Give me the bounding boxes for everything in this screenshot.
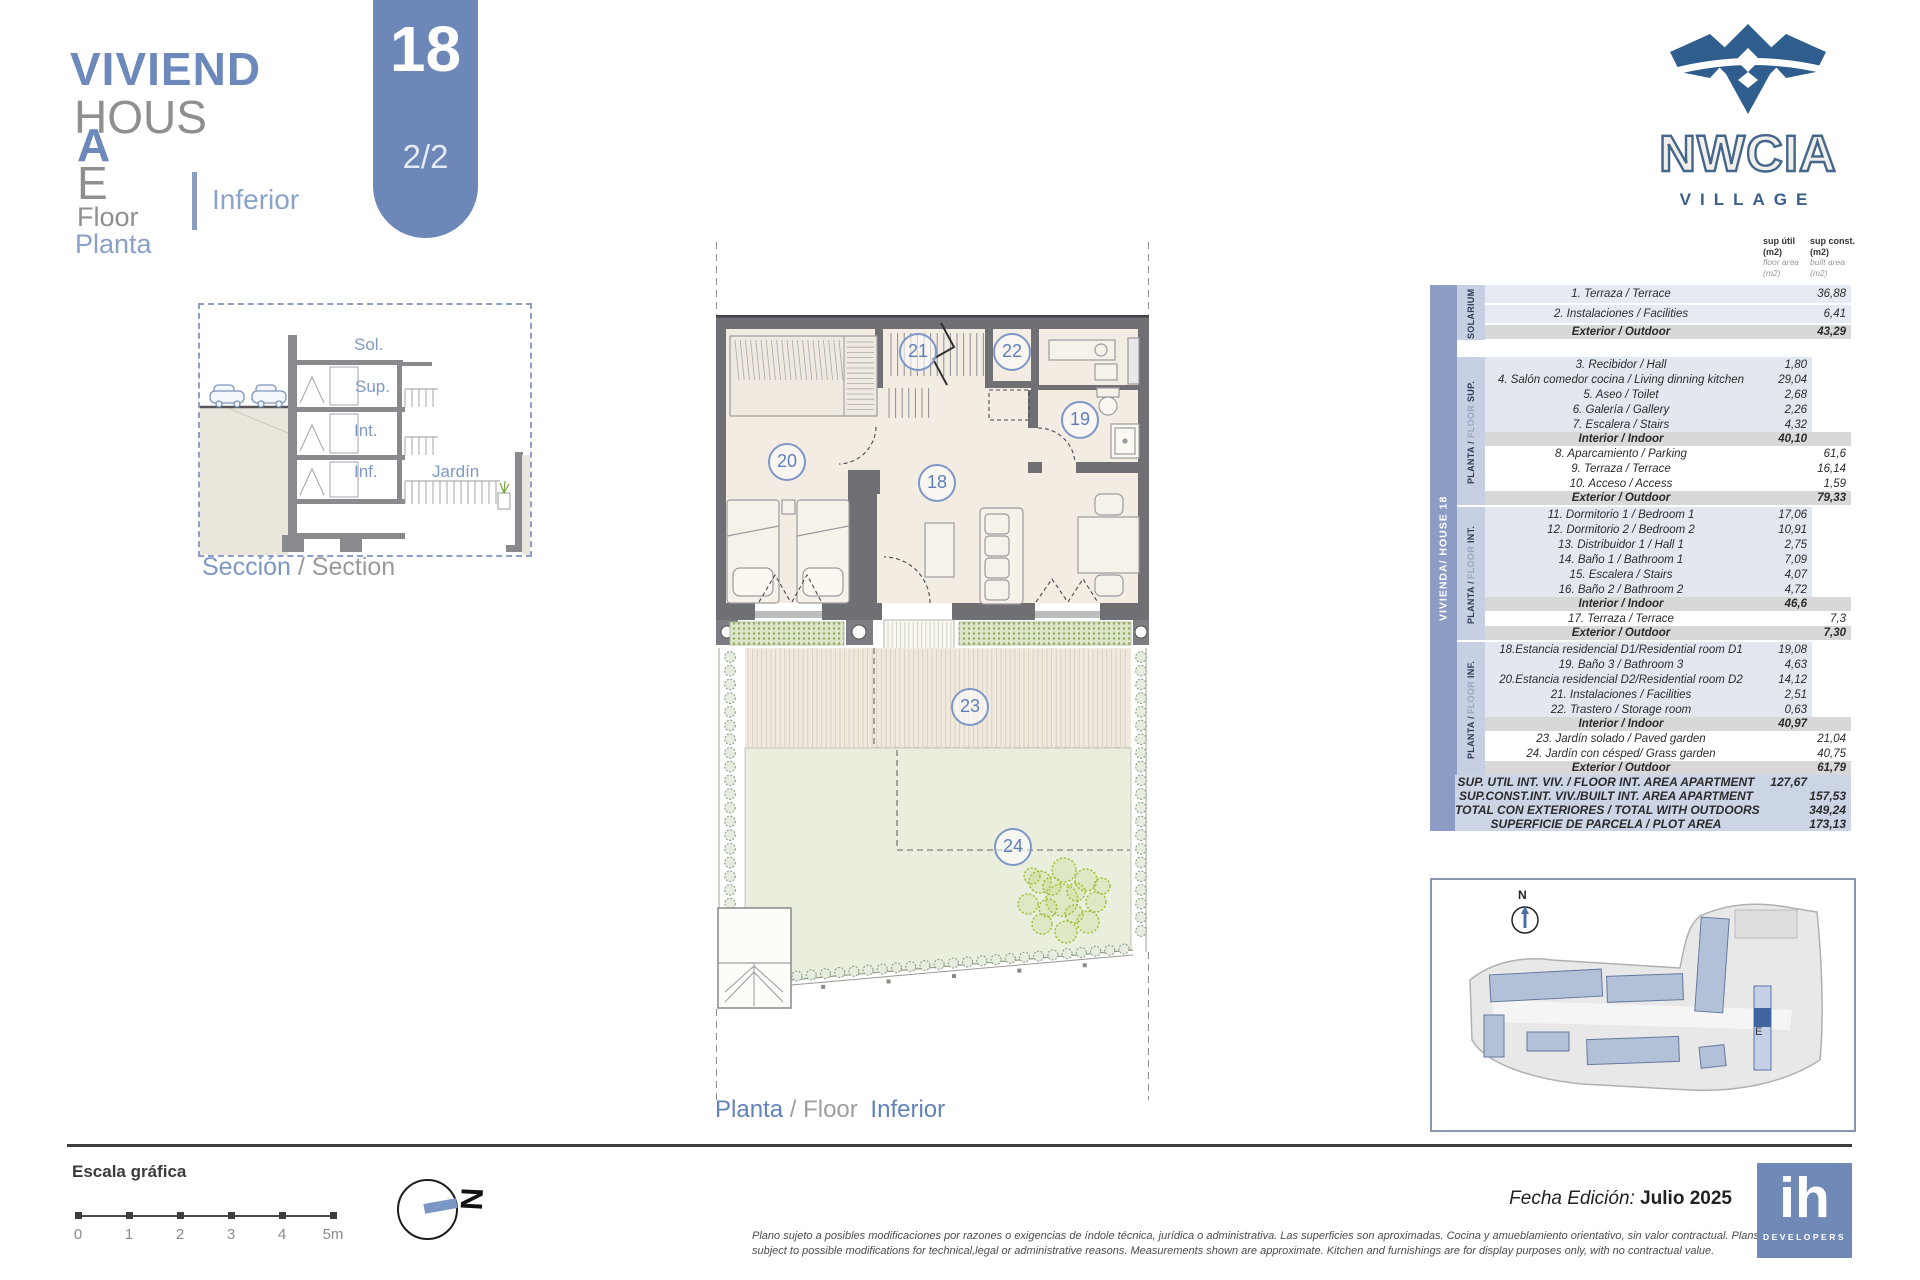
area-table-cell: 2. Instalaciones / Facilities [1485, 308, 1757, 320]
brand-name: NWCIA [1645, 124, 1851, 183]
col-header-floor-area: sup útil (m2) floor area (m2) [1763, 236, 1809, 278]
area-table-cell: 40,10 [1757, 433, 1807, 445]
area-summary-cell: SUP. UTIL INT. VIV. / FLOOR INT. AREA AP… [1455, 775, 1757, 789]
area-table-cell: 0,63 [1757, 704, 1807, 716]
area-table-row: Exterior / Outdoor79,33 [1485, 491, 1851, 505]
area-table-cell: 40,97 [1757, 718, 1807, 730]
area-summary-row: SUP. UTIL INT. VIV. / FLOOR INT. AREA AP… [1455, 775, 1851, 789]
section-label-int: Int. [354, 421, 378, 441]
room-number-badge: 20 [768, 443, 806, 481]
area-table-row: 17. Terraza / Terrace7,3 [1485, 611, 1851, 626]
site-north-label: N [1518, 888, 1527, 902]
section-band-label: SOLARIUM [1466, 289, 1476, 339]
plan-sheet: VIVIEND HOUS A E Floor Planta Inferior 1… [0, 0, 1920, 1280]
room-number-badge: 21 [899, 333, 937, 371]
col-header-text: (m2) [1763, 247, 1809, 258]
area-summary-cell: TOTAL CON EXTERIORES / TOTAL WITH OUTDOO… [1455, 803, 1760, 817]
area-table-cell: 9. Terraza / Terrace [1485, 463, 1757, 475]
floor-plan-figure: 18192021222324 [697, 236, 1187, 1116]
area-table-cell: 14. Baño 1 / Bathroom 1 [1485, 554, 1757, 566]
scale-dot [177, 1212, 184, 1219]
area-table-row: 4. Salón comedor cocina / Living dinning… [1485, 372, 1812, 387]
legal-disclaimer: Plano sujeto a posibles modificaciones p… [752, 1229, 1762, 1258]
area-table-row: 16. Baño 2 / Bathroom 24,72 [1485, 582, 1812, 597]
house-vertical-label: VIVIENDA/ HOUSE 18 [1430, 285, 1457, 831]
section-caption: Sección / Section [202, 553, 395, 582]
col-header-text: (m2) [1810, 247, 1856, 258]
area-table-row: 12. Dormitorio 2 / Bedroom 210,91 [1485, 522, 1812, 537]
section-band: SOLARIUM [1457, 285, 1485, 340]
area-table-cell: 7,3 [1807, 613, 1846, 625]
area-table-cell: 1. Terraza / Terrace [1485, 288, 1757, 300]
area-table-section: SOLARIUM 1. Terraza / Terrace36,882. Ins… [1457, 285, 1851, 340]
footer-divider [67, 1144, 1852, 1147]
house-vertical-label-bar: VIVIENDA/ HOUSE 18 [1430, 285, 1457, 831]
col-header-built-area: sup const. (m2) built area (m2) [1810, 236, 1856, 278]
area-table-cell: Exterior / Outdoor [1485, 326, 1757, 338]
area-table-cell: 21. Instalaciones / Facilities [1485, 689, 1757, 701]
area-table-row: 9. Terraza / Terrace16,14 [1485, 461, 1851, 476]
section-label-inf: Inf. [354, 462, 378, 482]
area-table-cell: 4. Salón comedor cocina / Living dinning… [1485, 374, 1757, 386]
header-divider-bar [192, 172, 197, 230]
area-table-row: 21. Instalaciones / Facilities2,51 [1485, 687, 1812, 702]
area-table-cell: 5. Aseo / Toilet [1485, 389, 1757, 401]
section-caption-en: / Section [298, 553, 395, 581]
scale-dot [75, 1212, 82, 1219]
area-table-cell: 16,14 [1807, 463, 1846, 475]
section-band-label: FLOOR [1466, 681, 1476, 714]
area-table-cell: 24. Jardín con césped/ Grass garden [1485, 748, 1757, 760]
area-table-cell: Interior / Indoor [1485, 718, 1757, 730]
area-table-cell: 17,06 [1757, 509, 1807, 521]
area-table-cell: 40,75 [1807, 748, 1846, 760]
page-indicator: 2/2 [373, 138, 478, 176]
area-table-cell: 20.Estancia residencial D2/Residential r… [1485, 674, 1757, 686]
area-table-cell: 19. Baño 3 / Bathroom 3 [1485, 659, 1757, 671]
compass-north-letter: N [453, 1187, 490, 1211]
section-band-label: INT. [1466, 526, 1476, 543]
scale-tick-label: 4 [278, 1226, 286, 1243]
area-table-cell: 17. Terraza / Terrace [1485, 613, 1757, 625]
area-table-section: PLANTA / FLOOR INF. 18.Estancia residenc… [1457, 642, 1851, 775]
area-table-cell: 16. Baño 2 / Bathroom 2 [1485, 584, 1757, 596]
area-summary-cell: 157,53 [1807, 789, 1846, 803]
section-band-label: INF. [1466, 661, 1476, 678]
section-label-sup: Sup. [355, 377, 390, 397]
area-table: sup útil (m2) floor area (m2) sup const.… [1430, 232, 1852, 834]
area-table-row: 7. Escalera / Stairs4,32 [1485, 417, 1812, 432]
scale-tick-label: 2 [176, 1226, 184, 1243]
area-table-row: 22. Trastero / Storage room0,63 [1485, 702, 1812, 717]
area-table-cell: Exterior / Outdoor [1485, 492, 1757, 504]
area-table-cell: 13. Distribuidor 1 / Hall 1 [1485, 539, 1757, 551]
area-table-cell: 61,6 [1807, 448, 1846, 460]
scale-dot [228, 1212, 235, 1219]
house-number-badge: 18 2/2 [373, 0, 478, 238]
area-table-row: 13. Distribuidor 1 / Hall 12,75 [1485, 537, 1812, 552]
area-table-row: 6. Galería / Gallery2,26 [1485, 402, 1812, 417]
area-table-row: 2. Instalaciones / Facilities6,41 [1485, 305, 1851, 323]
plan-caption-name: Inferior [870, 1096, 945, 1123]
room-number-badge: 18 [918, 464, 956, 502]
area-table-cell: 4,72 [1757, 584, 1807, 596]
floor-name: Inferior [212, 184, 299, 216]
area-table-cell: 4,32 [1757, 419, 1807, 431]
scale-dot [126, 1212, 133, 1219]
floor-plan-drawing [697, 236, 1187, 1116]
area-table-row: 8. Aparcamiento / Parking61,6 [1485, 446, 1851, 461]
area-table-cell: 14,12 [1757, 674, 1807, 686]
developer-logo: ih DEVELOPERS [1757, 1163, 1852, 1258]
area-table-cell: 4,63 [1757, 659, 1807, 671]
scale-tick-label: 5m [323, 1226, 344, 1243]
area-table-row: 15. Escalera / Stairs4,07 [1485, 567, 1812, 582]
area-table-cell: 11. Dormitorio 1 / Bedroom 1 [1485, 509, 1757, 521]
site-plan-figure: N E [1430, 878, 1856, 1132]
area-table-row: 19. Baño 3 / Bathroom 34,63 [1485, 657, 1812, 672]
col-header-text: built area [1810, 257, 1856, 268]
area-table-row: 24. Jardín con césped/ Grass garden40,75 [1485, 746, 1851, 761]
plan-caption-es: Planta [715, 1096, 783, 1123]
area-summary-cell: 127,67 [1757, 775, 1807, 789]
area-table-row: 10. Acceso / Access1,59 [1485, 476, 1851, 491]
edition-date: Fecha Edición: Julio 2025 [1400, 1188, 1732, 1210]
room-number-badge: 22 [993, 333, 1031, 371]
area-summary-cell: SUPERFICIE DE PARCELA / PLOT AREA [1455, 817, 1757, 831]
scale-dot [330, 1212, 337, 1219]
area-table-cell: Interior / Indoor [1485, 433, 1757, 445]
scale-bar-line [75, 1215, 333, 1217]
section-band-label: FLOOR [1466, 405, 1476, 438]
area-table-cell: 12. Dormitorio 2 / Bedroom 2 [1485, 524, 1757, 536]
area-table-cell: 1,59 [1807, 478, 1846, 490]
area-summary-cell: 173,13 [1807, 817, 1846, 831]
area-table-cell: 43,29 [1807, 326, 1846, 338]
title-vivienda: VIVIEND [70, 42, 261, 96]
area-table-cell: 7,09 [1757, 554, 1807, 566]
area-table-row: 11. Dormitorio 1 / Bedroom 117,06 [1485, 507, 1812, 522]
area-table-cell: 61,79 [1807, 762, 1846, 774]
col-header-text: floor area [1763, 257, 1809, 268]
area-table-cell: 21,04 [1807, 733, 1846, 745]
col-header-text: (m2) [1810, 268, 1856, 279]
section-band: PLANTA / FLOOR INT. [1457, 507, 1485, 640]
area-table-row: 5. Aseo / Toilet2,68 [1485, 387, 1812, 402]
disclaimer-line-1: Plano sujeto a posibles modificaciones p… [752, 1229, 1762, 1244]
area-table-cell: 46,6 [1757, 598, 1807, 610]
edition-date-label: Fecha Edición: [1509, 1188, 1635, 1209]
brand-subtitle: VILLAGE [1660, 190, 1836, 210]
section-band-label: SUP. [1466, 381, 1476, 402]
area-table-section: PLANTA / FLOOR INT. 11. Dormitorio 1 / B… [1457, 507, 1851, 640]
area-table-row: 1. Terraza / Terrace36,88 [1485, 285, 1851, 303]
col-header-text: sup útil [1763, 236, 1809, 247]
room-number-badge: 24 [994, 828, 1032, 866]
area-table-row: Interior / Indoor40,10 [1485, 432, 1851, 446]
area-summary-row: TOTAL CON EXTERIORES / TOTAL WITH OUTDOO… [1455, 803, 1851, 817]
site-plan-drawing [1432, 880, 1850, 1126]
scale-bar: Escala gráfica 012345m [72, 1162, 362, 1252]
area-table-row: Exterior / Outdoor61,79 [1485, 761, 1851, 775]
scale-dot [279, 1212, 286, 1219]
scale-tick-label: 0 [74, 1226, 82, 1243]
site-highlighted-unit-label: E [1755, 1026, 1762, 1038]
disclaimer-line-2: subject to possible modifications for te… [752, 1244, 1762, 1259]
col-header-text: (m2) [1763, 268, 1809, 279]
section-band-label: FLOOR [1466, 546, 1476, 579]
area-summary-cell: SUP.CONST.INT. VIV./BUILT INT. AREA APAR… [1455, 789, 1757, 803]
area-summary-row: SUPERFICIE DE PARCELA / PLOT AREA173,13 [1455, 817, 1851, 831]
area-table-cell: 79,33 [1807, 492, 1846, 504]
section-label-sol: Sol. [354, 335, 383, 355]
area-table-cell: 6,41 [1807, 308, 1846, 320]
area-table-cell: Interior / Indoor [1485, 598, 1757, 610]
developer-name: ih [1757, 1165, 1852, 1231]
area-table-row: 18.Estancia residencial D1/Residential r… [1485, 642, 1812, 657]
area-table-cell: 22. Trastero / Storage room [1485, 704, 1757, 716]
area-table-row: 3. Recibidor / Hall1,80 [1485, 357, 1812, 372]
area-table-cell: 23. Jardín solado / Paved garden [1485, 733, 1757, 745]
area-table-cell: 2,75 [1757, 539, 1807, 551]
area-table-row: 14. Baño 1 / Bathroom 17,09 [1485, 552, 1812, 567]
room-number-badge: 23 [951, 688, 989, 726]
room-number-badge: 19 [1061, 401, 1099, 439]
section-band-label: PLANTA / [1466, 441, 1476, 484]
section-caption-es: Sección [202, 553, 291, 581]
area-table-cell: 10. Acceso / Access [1485, 478, 1757, 490]
scale-bar-title: Escala gráfica [72, 1162, 362, 1182]
building-section-figure: Sol. Sup. Int. Inf. Jardín [198, 303, 532, 557]
area-table-cell: 36,88 [1807, 288, 1846, 300]
floor-label-es: Planta [75, 229, 152, 260]
area-table-cell: 15. Escalera / Stairs [1485, 569, 1757, 581]
section-label-jardin: Jardín [432, 462, 479, 482]
area-table-cell: 29,04 [1757, 374, 1807, 386]
house-number: 18 [373, 16, 478, 82]
area-table-row: Exterior / Outdoor7,30 [1485, 626, 1851, 640]
section-band-label: PLANTA / [1466, 716, 1476, 759]
area-table-cell: 7. Escalera / Stairs [1485, 419, 1757, 431]
section-band-label: PLANTA / [1466, 581, 1476, 624]
area-table-row: 20.Estancia residencial D2/Residential r… [1485, 672, 1812, 687]
area-table-cell: 10,91 [1757, 524, 1807, 536]
area-table-cell: Exterior / Outdoor [1485, 762, 1757, 774]
area-summary-row: SUP.CONST.INT. VIV./BUILT INT. AREA APAR… [1455, 789, 1851, 803]
plan-caption-mid: / Floor [790, 1096, 858, 1123]
area-table-cell: 7,30 [1807, 627, 1846, 639]
area-table-cell: 3. Recibidor / Hall [1485, 359, 1757, 371]
area-table-cell: 18.Estancia residencial D1/Residential r… [1485, 644, 1757, 656]
edition-date-value: Julio 2025 [1640, 1188, 1732, 1209]
area-table-cell: 2,26 [1757, 404, 1807, 416]
developer-subtitle: DEVELOPERS [1757, 1232, 1852, 1242]
scale-tick-label: 1 [125, 1226, 133, 1243]
area-table-cell: Exterior / Outdoor [1485, 627, 1757, 639]
area-table-section: PLANTA / FLOOR SUP. 3. Recibidor / Hall1… [1457, 357, 1851, 505]
area-table-cell: 2,68 [1757, 389, 1807, 401]
area-table-row: Interior / Indoor46,6 [1485, 597, 1851, 611]
section-band: PLANTA / FLOOR INF. [1457, 642, 1485, 775]
section-band: PLANTA / FLOOR SUP. [1457, 357, 1485, 505]
area-table-cell: 2,51 [1757, 689, 1807, 701]
nwcia-logo-icon [1668, 22, 1828, 118]
area-table-row: Interior / Indoor40,97 [1485, 717, 1851, 731]
area-table-cell: 6. Galería / Gallery [1485, 404, 1757, 416]
area-table-cell: 19,08 [1757, 644, 1807, 656]
area-table-summary: SUP. UTIL INT. VIV. / FLOOR INT. AREA AP… [1455, 775, 1851, 831]
area-table-cell: 1,80 [1757, 359, 1807, 371]
col-header-text: sup const. [1810, 236, 1856, 247]
area-table-row: Exterior / Outdoor43,29 [1485, 325, 1851, 339]
area-table-cell: 8. Aparcamiento / Parking [1485, 448, 1757, 460]
scale-tick-label: 3 [227, 1226, 235, 1243]
plan-caption: Planta / Floor Inferior [715, 1096, 945, 1124]
area-table-cell: 4,07 [1757, 569, 1807, 581]
area-summary-cell: 349,24 [1808, 803, 1846, 817]
area-table-row: 23. Jardín solado / Paved garden21,04 [1485, 731, 1851, 746]
